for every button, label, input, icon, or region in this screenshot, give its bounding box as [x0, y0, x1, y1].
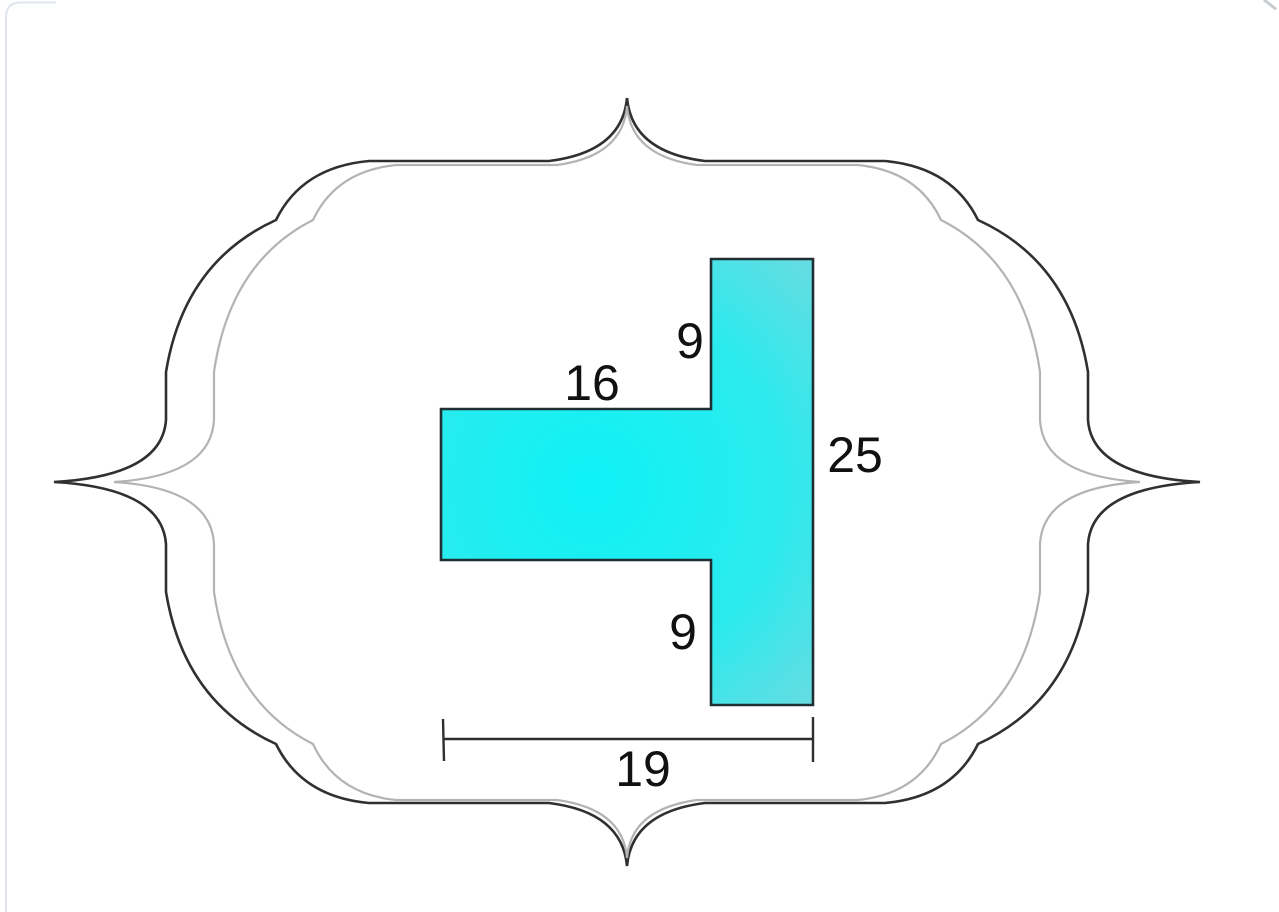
- geometry-figure: 9 16 25 9 19: [0, 0, 1279, 912]
- label-top-arm-16: 16: [564, 355, 620, 411]
- t-shape-polygon: [441, 259, 813, 705]
- question-canvas: 9 16 25 9 19: [0, 0, 1279, 912]
- card-edge-border: [6, 3, 56, 912]
- label-upper-segment-9: 9: [676, 313, 704, 369]
- label-lower-segment-9: 9: [669, 604, 697, 660]
- label-right-side-25: 25: [827, 427, 883, 483]
- dimension-tick-left: [443, 719, 444, 761]
- label-bottom-width-19: 19: [615, 741, 671, 797]
